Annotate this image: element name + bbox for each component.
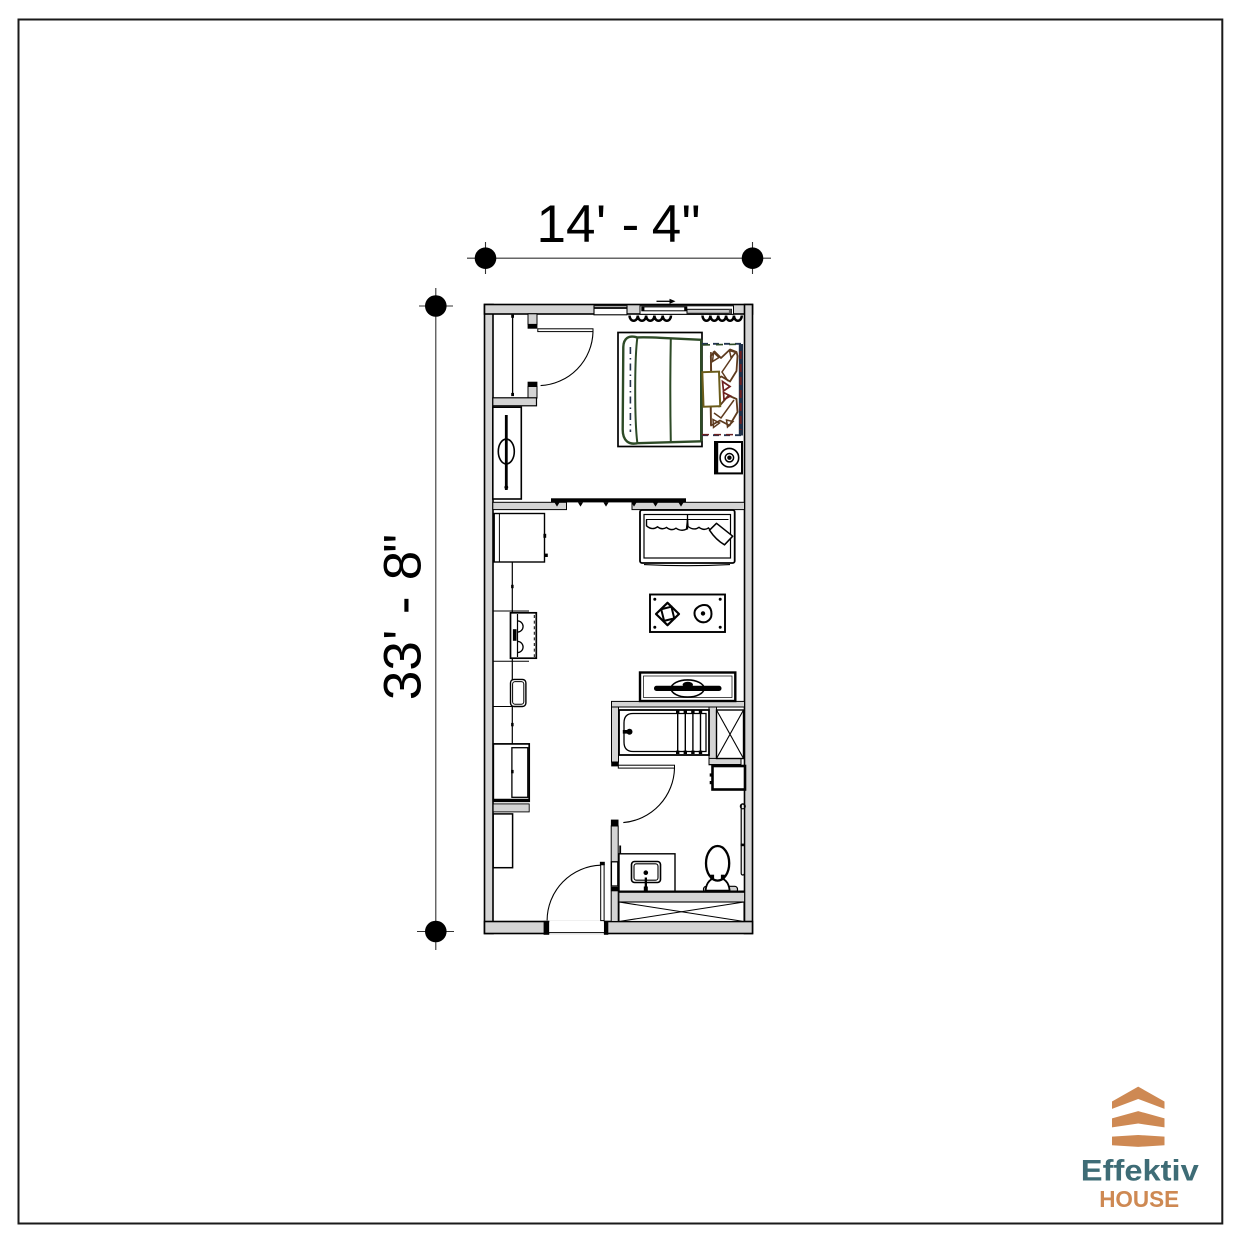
svg-text:Effektiv: Effektiv: [1081, 1154, 1199, 1187]
svg-text:HOUSE: HOUSE: [1099, 1186, 1179, 1212]
